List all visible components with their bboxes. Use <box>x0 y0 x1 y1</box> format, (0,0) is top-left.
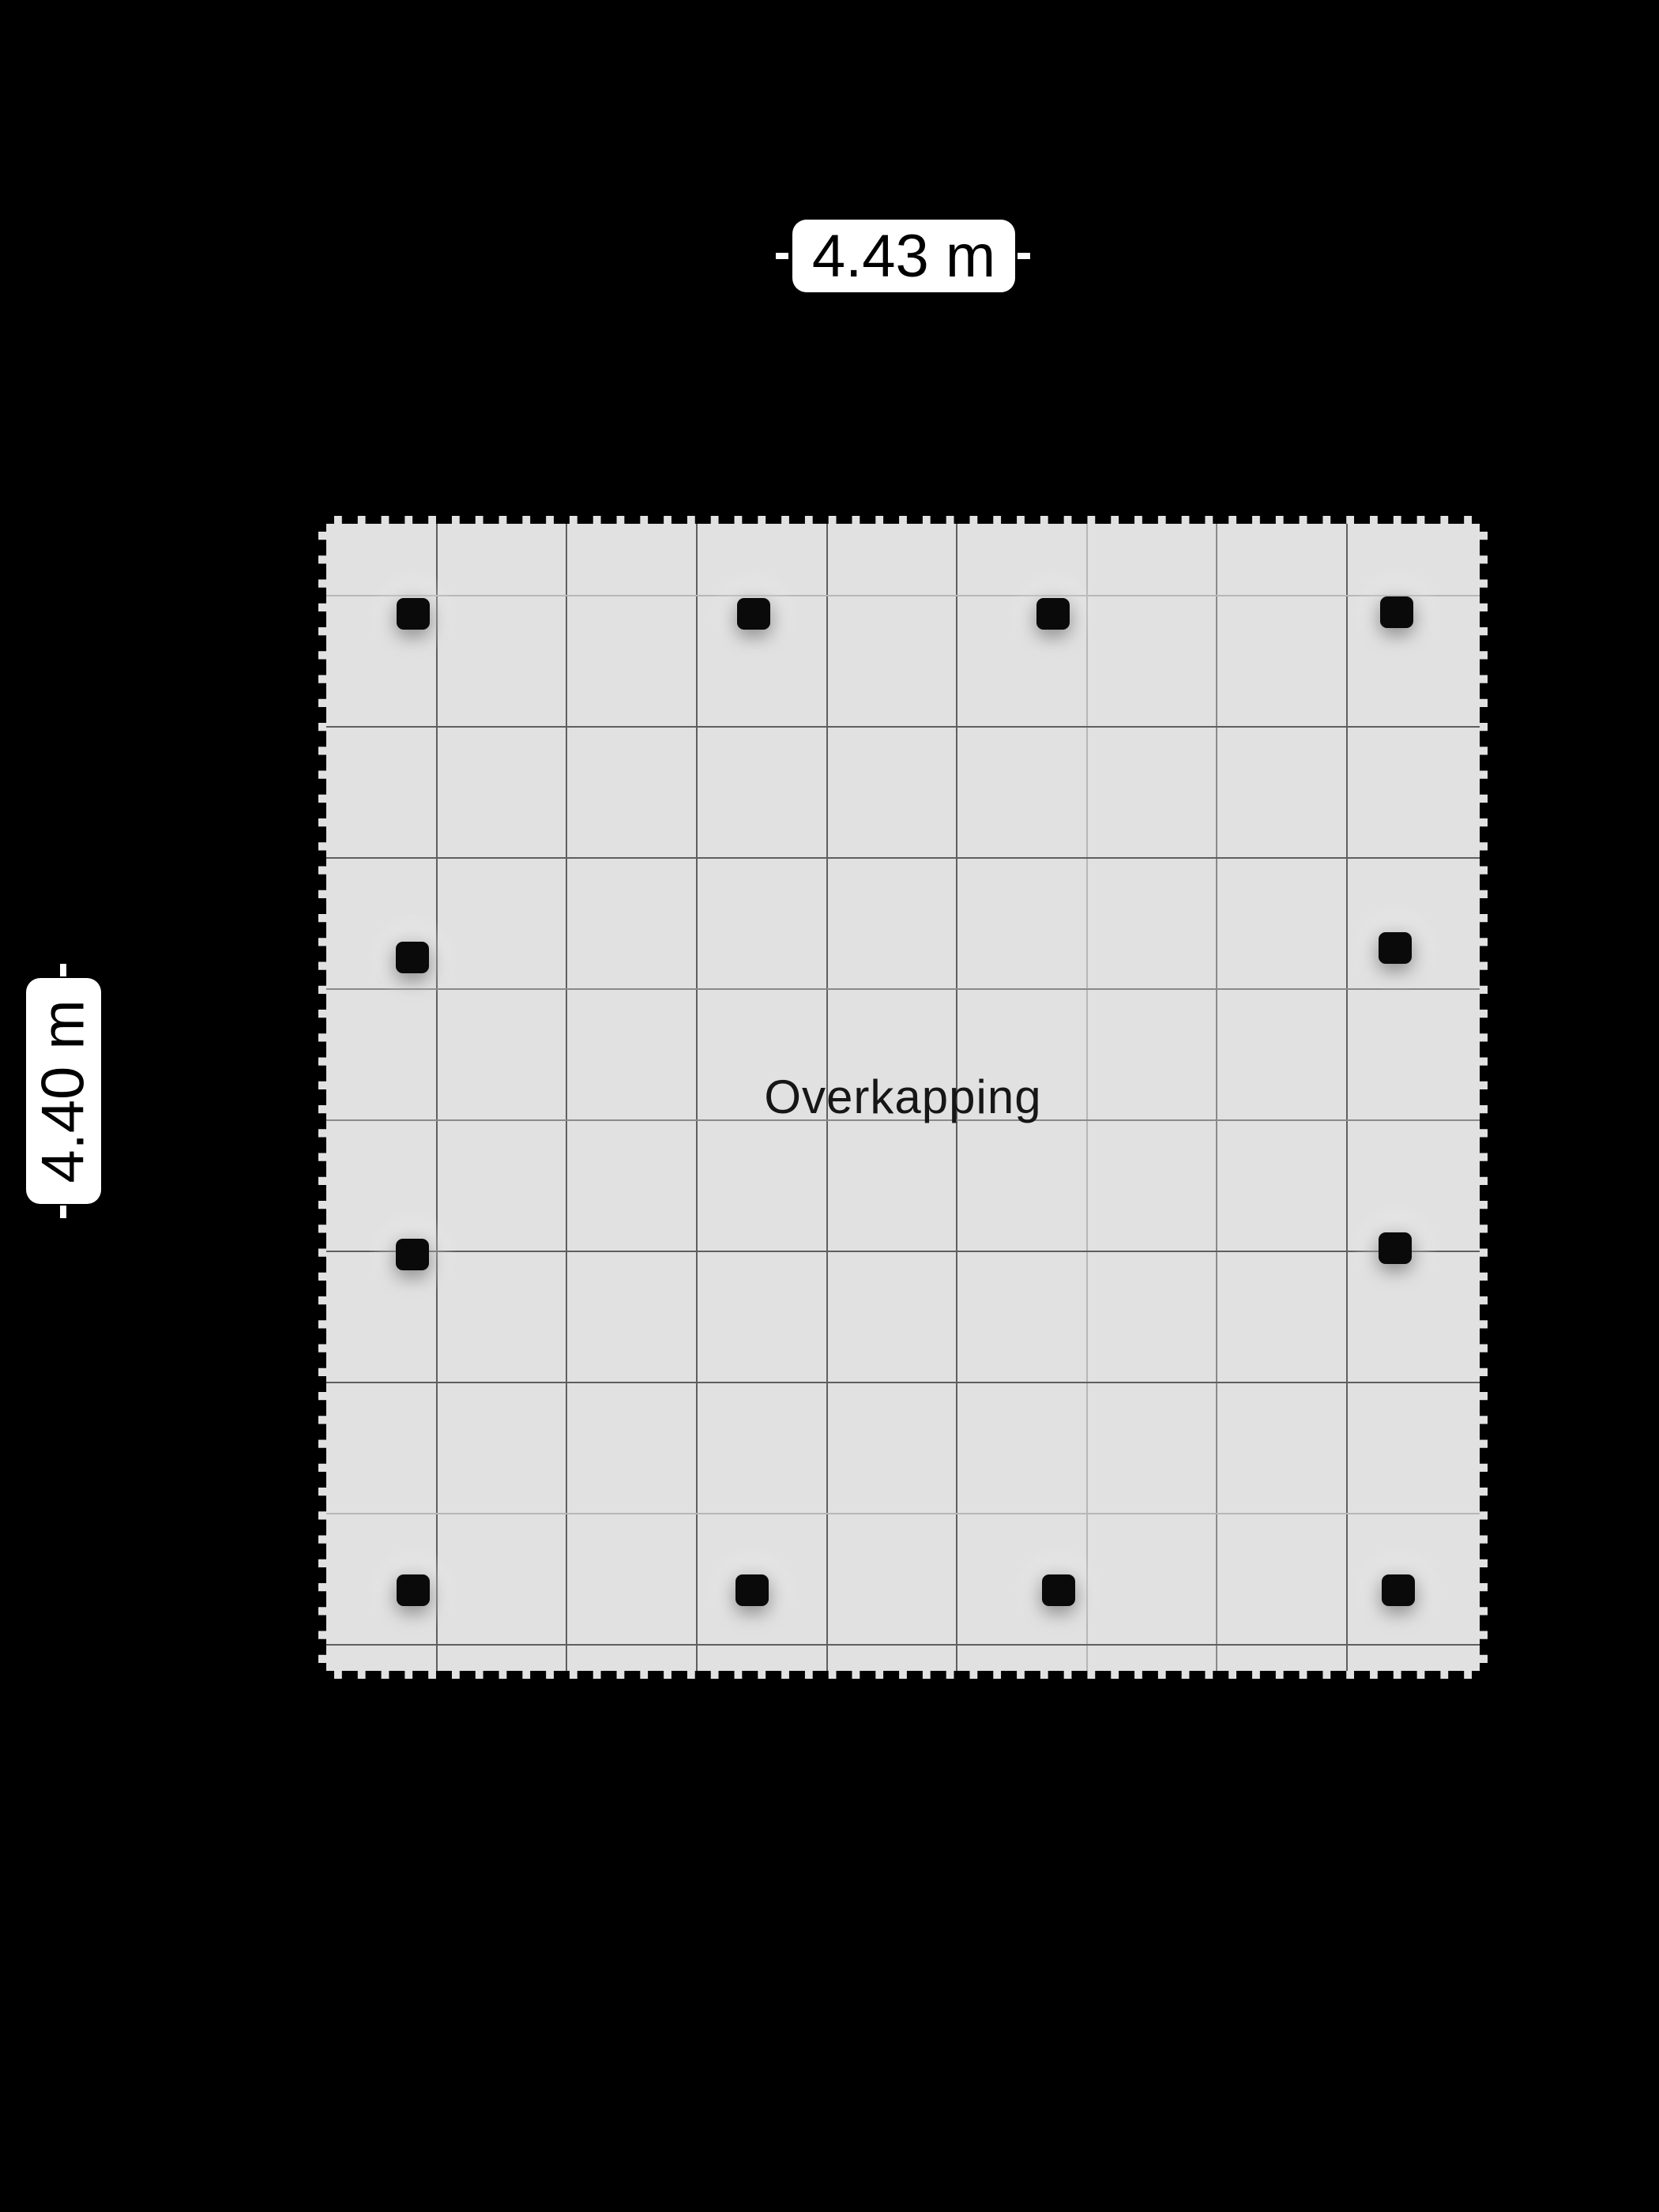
dimension-tick-left <box>776 253 788 259</box>
post-marker <box>1379 1232 1412 1264</box>
dimension-tick-right <box>1018 253 1030 259</box>
dimension-tick-top <box>60 964 66 976</box>
post-marker <box>1042 1574 1075 1606</box>
height-dimension-text: 4.40 m <box>29 999 98 1183</box>
post-marker <box>397 1574 430 1606</box>
room-label: Overkapping <box>326 1072 1480 1123</box>
post-marker <box>397 598 430 630</box>
post-marker <box>1380 596 1413 628</box>
width-dimension-label: 4.43 m <box>792 220 1015 292</box>
floor-plan: Overkapping <box>318 516 1488 1679</box>
post-marker <box>396 1239 429 1270</box>
post-marker <box>1036 598 1070 630</box>
post-marker <box>737 598 770 630</box>
dimension-tick-bottom <box>60 1206 66 1218</box>
post-marker <box>1382 1574 1415 1606</box>
post-marker <box>396 942 429 973</box>
width-dimension-text: 4.43 m <box>812 222 995 291</box>
height-dimension-label: 4.40 m <box>26 978 101 1204</box>
post-marker <box>735 1574 769 1606</box>
post-marker <box>1379 932 1412 964</box>
plan-canvas: 4.43 m 4.40 m Overkapping <box>0 0 1659 2212</box>
